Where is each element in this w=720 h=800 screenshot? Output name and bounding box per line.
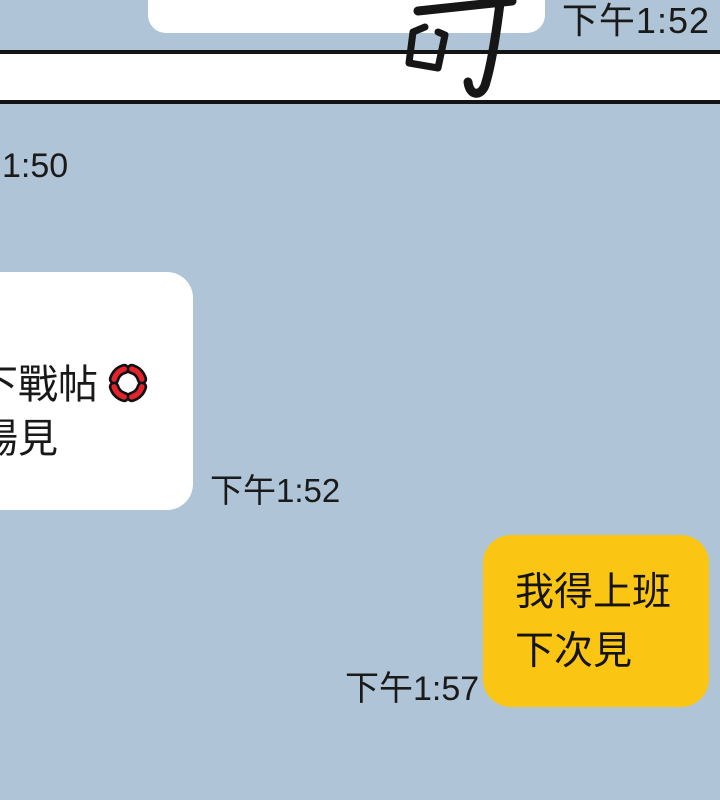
top-chat-panel: 下午1:52 (0, 0, 720, 50)
comic-chat-page: 下午1:52 叮 1:50 下戰帖 (0, 0, 720, 800)
incoming-message-line2: 場見 (0, 412, 193, 466)
incoming-message-bubble-cropped[interactable] (148, 0, 545, 33)
chat-panel: 1:50 下戰帖 (0, 104, 720, 800)
incoming-message-line1: 下戰帖 (0, 358, 193, 412)
message-timestamp: 下午1:52 (562, 0, 710, 44)
incoming-message-timestamp: 下午1:52 (210, 464, 340, 512)
outgoing-message-timestamp: 下午1:57 (345, 661, 479, 710)
outgoing-message-bubble[interactable]: 我得上班 下次見 (483, 535, 709, 707)
incoming-message-bubble[interactable]: 下戰帖 (0, 272, 193, 510)
panel-border-top (0, 50, 720, 54)
message-timestamp-partial: 1:50 (2, 147, 68, 186)
anger-symbol-icon (104, 359, 152, 407)
outgoing-message-line2: 下次見 (515, 622, 709, 681)
outgoing-message-line1: 我得上班 (515, 563, 709, 622)
